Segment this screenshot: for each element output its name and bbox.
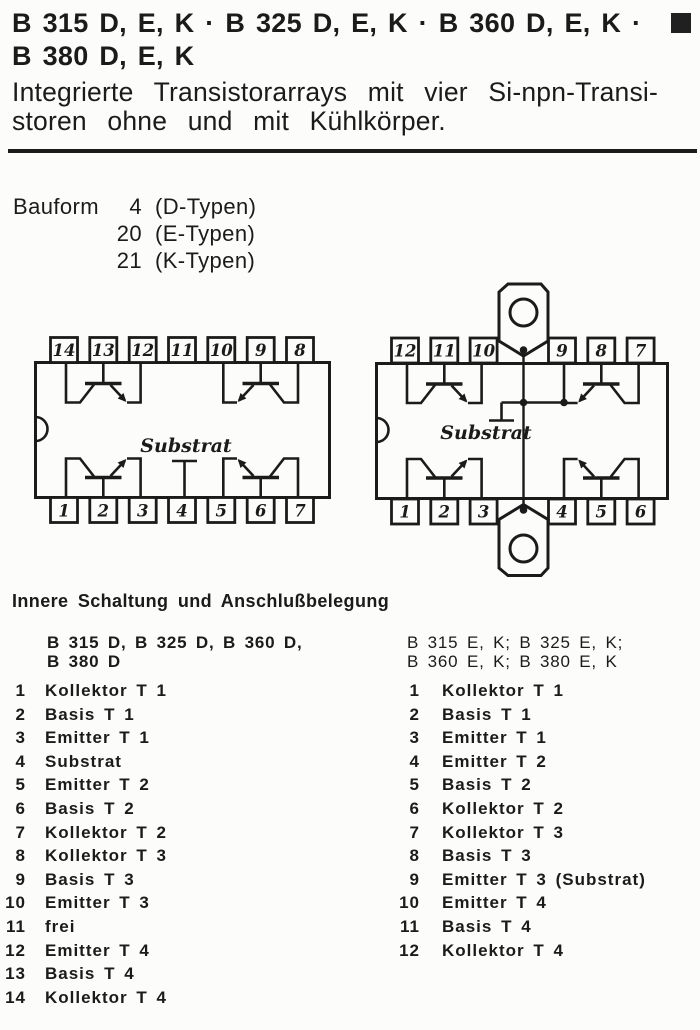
pin-number: 8 [595, 342, 608, 361]
pin-function: Kollektor T 1 [442, 679, 564, 703]
pin-number: 9 [556, 342, 568, 361]
pin-function: Emitter T 4 [442, 891, 547, 915]
corner-marker-icon [671, 13, 691, 33]
pin-number: 5 [216, 502, 227, 521]
pin-number: 12 [385, 939, 420, 963]
package-diagrams-figure: 14 13 12 11 10 9 8 1 2 3 4 5 6 7 [0, 280, 700, 585]
pin-number: 13 [0, 962, 26, 986]
pinout-header-right-line-1: B 315 E, K; B 325 E, K; [407, 634, 623, 653]
substrat-label: Substrat [140, 435, 232, 457]
pin-number: 11 [385, 915, 420, 939]
pinout-list-left: 1Kollektor T 1 2Basis T 1 3Emitter T 1 4… [0, 679, 167, 1009]
pin-number: 2 [438, 503, 450, 522]
pinout-header-left-line-2: B 380 D [47, 653, 303, 672]
pin-function: Emitter T 3 [45, 891, 150, 915]
pinout-header-left-line-1: B 315 D, B 325 D, B 360 D, [47, 634, 303, 653]
dip12-heatsink-diagram: 12 11 10 9 8 7 1 2 3 4 5 6 [377, 284, 668, 576]
pin-row: 9Basis T 3 [0, 868, 167, 892]
pin-number: 4 [176, 502, 187, 521]
pin-number: 6 [255, 502, 267, 521]
pin-number: 6 [635, 503, 647, 522]
pin-number: 2 [385, 703, 420, 727]
substrat-label: Substrat [440, 422, 532, 444]
pin-function: Kollektor T 4 [442, 939, 564, 963]
bauform-type: (K-Typen) [155, 248, 255, 274]
pin-number: 9 [385, 868, 420, 892]
pin-number: 5 [596, 503, 607, 522]
pin-number: 12 [394, 342, 417, 361]
pin-number: 8 [0, 844, 26, 868]
datasheet-page: B 315 D, E, K · B 325 D, E, K · B 360 D,… [0, 0, 700, 1030]
bauform-type: (E-Typen) [155, 221, 255, 247]
bauform-number: 4 [100, 194, 142, 220]
section-heading: Innere Schaltung und Anschlußbelegung [12, 591, 389, 612]
pin-row: 5Basis T 2 [385, 773, 646, 797]
pin-number: 13 [92, 341, 115, 360]
junction-dot [560, 399, 568, 407]
pin-row: 3Emitter T 1 [385, 726, 646, 750]
pinout-list-right: 1Kollektor T 1 2Basis T 1 3Emitter T 1 4… [385, 679, 646, 962]
dip14-diagram: 14 13 12 11 10 9 8 1 2 3 4 5 6 7 [36, 338, 330, 523]
dip14-body-outline [36, 363, 330, 498]
pin-number: 1 [399, 503, 410, 522]
bauform-row: 4 (D-Typen) [100, 194, 256, 220]
pinout-header-right: B 315 E, K; B 325 E, K; B 360 E, K; B 38… [407, 634, 623, 671]
pin-function: Basis T 1 [45, 703, 135, 727]
pin-row: 12Kollektor T 4 [385, 939, 646, 963]
pin-function: Basis T 3 [45, 868, 135, 892]
pin-function: Kollektor T 2 [442, 797, 564, 821]
pin-row: 12Emitter T 4 [0, 939, 167, 963]
pin-function: frei [45, 915, 75, 939]
heatsink-tab-bottom-icon [499, 505, 548, 576]
pin-number: 11 [0, 915, 26, 939]
pin-function: Emitter T 1 [45, 726, 150, 750]
pin-number: 11 [433, 342, 456, 361]
page-title-line-1: B 315 D, E, K · B 325 D, E, K · B 360 D,… [12, 8, 641, 39]
junction-dot [520, 506, 528, 514]
pin-function: Kollektor T 3 [45, 844, 167, 868]
pin-number: 2 [97, 502, 109, 521]
heatsink-tab-top-icon [499, 284, 548, 356]
pin-number: 3 [137, 502, 148, 521]
pin-row: 1Kollektor T 1 [0, 679, 167, 703]
pin-row: 13Basis T 4 [0, 962, 167, 986]
pin-function: Basis T 2 [442, 773, 532, 797]
pin-number: 7 [0, 821, 26, 845]
pin-row: 2Basis T 1 [0, 703, 167, 727]
pin-number: 4 [0, 750, 26, 774]
pin-number: 4 [556, 503, 567, 522]
pin-number: 10 [0, 891, 26, 915]
pin-row: 7Kollektor T 3 [385, 821, 646, 845]
pin-number: 9 [0, 868, 26, 892]
pin-row: 2Basis T 1 [385, 703, 646, 727]
pinout-header-left: B 315 D, B 325 D, B 360 D, B 380 D [47, 634, 303, 671]
pin-function: Emitter T 3 (Substrat) [442, 868, 646, 892]
pin-function: Basis T 2 [45, 797, 135, 821]
pin-row: 9Emitter T 3 (Substrat) [385, 868, 646, 892]
pin-row: 10Emitter T 4 [385, 891, 646, 915]
pin-number: 11 [171, 341, 194, 360]
junction-dot [520, 399, 528, 407]
pin-function: Emitter T 1 [442, 726, 547, 750]
pin-number: 10 [210, 341, 233, 360]
pin-row: 4Emitter T 2 [385, 750, 646, 774]
subtitle-line-1: Integrierte Transistorarrays mit vier Si… [12, 77, 658, 108]
pin-number: 3 [385, 726, 420, 750]
pin-function: Kollektor T 3 [442, 821, 564, 845]
pin-function: Kollektor T 4 [45, 986, 167, 1010]
pin-number: 5 [385, 773, 420, 797]
pin-number: 7 [385, 821, 420, 845]
pin-number: 4 [385, 750, 420, 774]
pinout-header-right-line-2: B 360 E, K; B 380 E, K [407, 653, 623, 672]
pin-number: 1 [385, 679, 420, 703]
pin-number: 3 [478, 503, 489, 522]
pin-number: 7 [635, 342, 647, 361]
pin-function: Basis T 4 [442, 915, 532, 939]
pin-number: 3 [0, 726, 26, 750]
pin-row: 6Kollektor T 2 [385, 797, 646, 821]
dip14-top-pin-row: 14 13 12 11 10 9 8 [51, 338, 314, 363]
pin-number: 14 [0, 986, 26, 1010]
pin-row: 1Kollektor T 1 [385, 679, 646, 703]
pin-function: Substrat [45, 750, 122, 774]
pin-row: 10Emitter T 3 [0, 891, 167, 915]
pin-number: 7 [294, 502, 306, 521]
dip14-bottom-pin-row: 1 2 3 4 5 6 7 [51, 498, 314, 523]
pin-number: 12 [131, 341, 154, 360]
bauform-number: 21 [100, 248, 142, 274]
pin-row: 14Kollektor T 4 [0, 986, 167, 1010]
junction-dot [520, 346, 528, 354]
bauform-label: Bauform [13, 194, 99, 220]
pin-number: 9 [255, 341, 267, 360]
pin-number: 10 [385, 891, 420, 915]
pin-number: 2 [0, 703, 26, 727]
pin-number: 10 [472, 342, 495, 361]
bauform-type: (D-Typen) [155, 194, 256, 220]
pin-function: Kollektor T 2 [45, 821, 167, 845]
pin-number: 12 [0, 939, 26, 963]
pin-number: 6 [0, 797, 26, 821]
bauform-row: 21 (K-Typen) [100, 248, 255, 274]
pin-number: 14 [53, 341, 76, 360]
bauform-number: 20 [100, 221, 142, 247]
pin-number: 1 [58, 502, 69, 521]
divider-rule [8, 149, 697, 153]
pin-function: Basis T 4 [45, 962, 135, 986]
pin-row: 4Substrat [0, 750, 167, 774]
pin-row: 3Emitter T 1 [0, 726, 167, 750]
pin-function: Emitter T 4 [45, 939, 150, 963]
pin-row: 8Basis T 3 [385, 844, 646, 868]
bauform-row: 20 (E-Typen) [100, 221, 255, 247]
pin-function: Kollektor T 1 [45, 679, 167, 703]
pin-row: 5Emitter T 2 [0, 773, 167, 797]
pin-row: 7Kollektor T 2 [0, 821, 167, 845]
pin-row: 11frei [0, 915, 167, 939]
pin-function: Basis T 3 [442, 844, 532, 868]
pin-number: 6 [385, 797, 420, 821]
pin-number: 8 [293, 341, 306, 360]
pin-function: Emitter T 2 [45, 773, 150, 797]
pin-function: Emitter T 2 [442, 750, 547, 774]
pin-row: 11Basis T 4 [385, 915, 646, 939]
pin-number: 8 [385, 844, 420, 868]
pin-function: Basis T 1 [442, 703, 532, 727]
pin-row: 8Kollektor T 3 [0, 844, 167, 868]
pin-number: 5 [0, 773, 26, 797]
pin-number: 1 [0, 679, 26, 703]
subtitle-line-2: storen ohne und mit Kühlkörper. [12, 106, 446, 137]
page-title-line-2: B 380 D, E, K [12, 41, 194, 72]
pin-row: 6Basis T 2 [0, 797, 167, 821]
